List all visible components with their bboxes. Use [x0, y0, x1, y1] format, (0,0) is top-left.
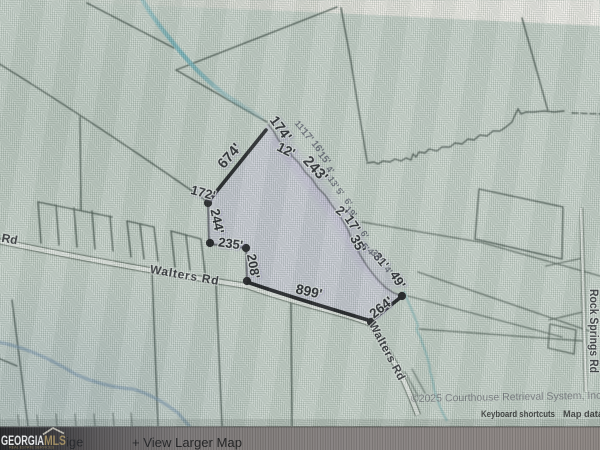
svg-text:REAL ESTATE SERVICES: REAL ESTATE SERVICES	[9, 446, 54, 450]
svg-text:Rock Springs Rd: Rock Springs Rd	[587, 289, 599, 373]
svg-text:ige: ige	[66, 435, 83, 450]
svg-text:Rd: Rd	[1, 231, 19, 248]
svg-text:+ View Larger Map: + View Larger Map	[132, 436, 242, 450]
svg-text:Map data: Map data	[563, 409, 600, 419]
svg-text:Keyboard shortcuts: Keyboard shortcuts	[481, 409, 555, 419]
